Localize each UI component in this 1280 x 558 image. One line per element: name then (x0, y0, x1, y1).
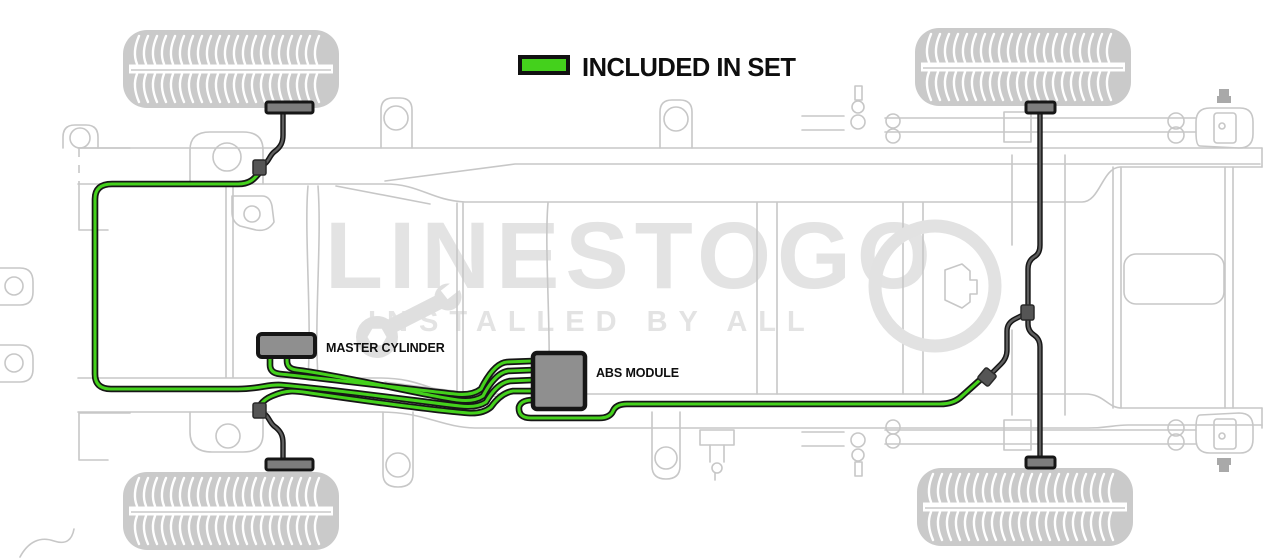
wheel-brake-rear-lower (1026, 457, 1055, 468)
line-fitting-front-upper (253, 160, 266, 175)
wheel-brake-front-lower (266, 459, 313, 470)
legend-swatch (520, 57, 568, 73)
tire-front-upper (123, 30, 339, 108)
legend-label: INCLUDED IN SET (582, 54, 796, 82)
abs-module (533, 353, 585, 409)
abs-module-label: ABS MODULE (596, 366, 679, 380)
watermark: LINESTOGO INSTALLED BY ALL (325, 203, 937, 358)
line-fitting-front-lower (253, 403, 266, 418)
line-fitting-rear-junction (1021, 305, 1034, 320)
wheel-brake-front-upper (266, 102, 313, 113)
wheel-brake-rear-upper (1026, 102, 1055, 113)
chassis-underside-diagram: LINESTOGO INSTALLED BY ALL (0, 0, 1280, 558)
watermark-brand-text: LINESTOGO (325, 203, 937, 309)
master-cylinder-label: MASTER CYLINDER (326, 341, 445, 355)
legend: INCLUDED IN SET (520, 54, 796, 82)
master-cylinder (258, 334, 315, 357)
tire-front-lower (123, 472, 339, 550)
tire-rear-lower (917, 468, 1133, 546)
tire-rear-upper (915, 28, 1131, 106)
brake-line-diagram: LINESTOGO INSTALLED BY ALL (0, 0, 1280, 558)
